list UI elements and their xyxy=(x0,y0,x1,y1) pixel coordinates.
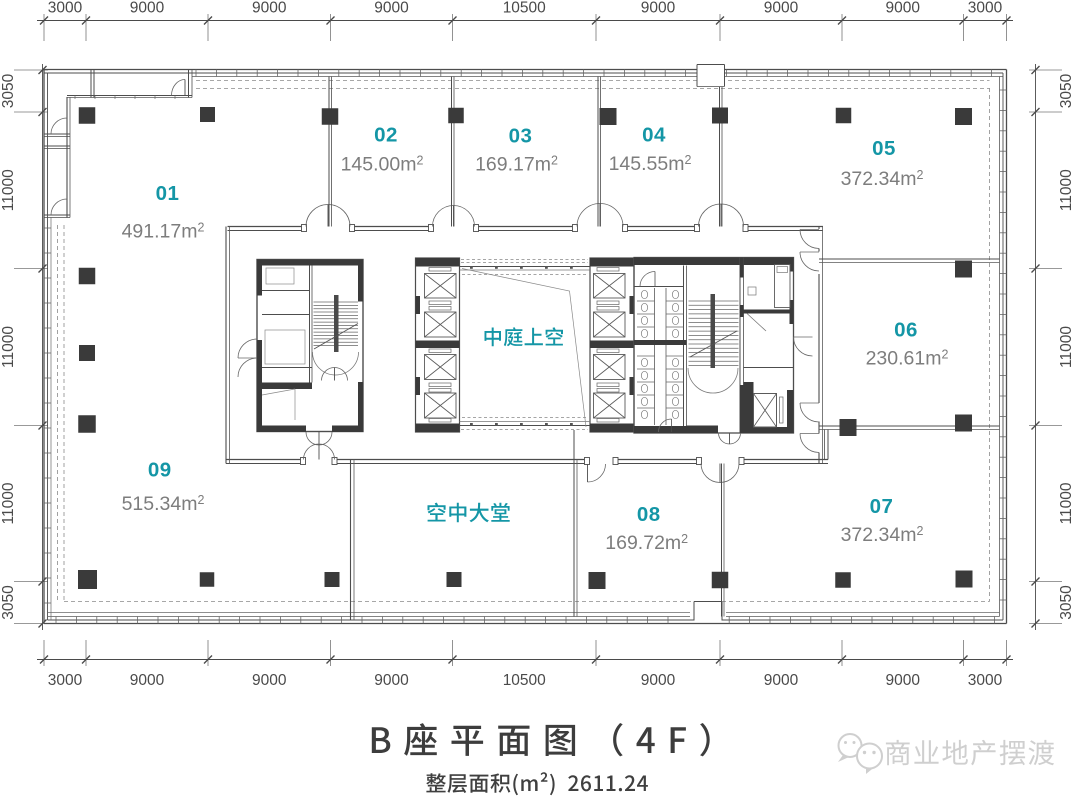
svg-text:3050: 3050 xyxy=(0,73,17,108)
svg-text:10500: 10500 xyxy=(503,672,546,689)
svg-text:3050: 3050 xyxy=(1058,585,1075,620)
svg-text:08: 08 xyxy=(637,503,661,526)
svg-text:372.34m2: 372.34m2 xyxy=(841,168,924,190)
svg-text:11000: 11000 xyxy=(1058,482,1075,524)
svg-text:03: 03 xyxy=(509,125,533,148)
svg-text:145.55m2: 145.55m2 xyxy=(609,153,692,175)
svg-text:05: 05 xyxy=(872,137,896,160)
svg-text:11000: 11000 xyxy=(0,169,17,211)
svg-text:145.00m2: 145.00m2 xyxy=(341,154,424,176)
svg-text:3000: 3000 xyxy=(48,0,83,17)
svg-text:372.34m2: 372.34m2 xyxy=(841,524,924,546)
svg-text:10500: 10500 xyxy=(503,0,546,17)
svg-text:11000: 11000 xyxy=(1058,169,1075,211)
svg-text:02: 02 xyxy=(374,124,398,147)
svg-text:9000: 9000 xyxy=(764,672,799,689)
svg-text:9000: 9000 xyxy=(764,0,799,17)
svg-text:3000: 3000 xyxy=(968,0,1003,17)
svg-text:3000: 3000 xyxy=(48,672,83,689)
svg-text:9000: 9000 xyxy=(374,672,409,689)
svg-text:06: 06 xyxy=(894,319,918,342)
svg-text:9000: 9000 xyxy=(886,672,921,689)
svg-text:04: 04 xyxy=(642,124,666,147)
svg-text:9000: 9000 xyxy=(641,0,676,17)
svg-text:09: 09 xyxy=(148,459,172,482)
svg-text:230.61m2: 230.61m2 xyxy=(866,348,949,370)
svg-text:11000: 11000 xyxy=(0,482,17,524)
svg-text:9000: 9000 xyxy=(252,672,287,689)
svg-text:3050: 3050 xyxy=(0,585,17,620)
svg-text:9000: 9000 xyxy=(641,672,676,689)
svg-text:9000: 9000 xyxy=(130,0,165,17)
svg-text:01: 01 xyxy=(156,182,180,205)
svg-text:9000: 9000 xyxy=(886,0,921,17)
svg-text:9000: 9000 xyxy=(252,0,287,17)
svg-text:9000: 9000 xyxy=(130,672,165,689)
svg-text:11000: 11000 xyxy=(0,326,17,368)
svg-text:515.34m2: 515.34m2 xyxy=(122,493,205,515)
svg-text:07: 07 xyxy=(870,495,894,518)
svg-text:169.72m2: 169.72m2 xyxy=(605,532,688,554)
svg-text:3050: 3050 xyxy=(1058,73,1075,108)
svg-text:169.17m2: 169.17m2 xyxy=(475,154,558,176)
svg-text:9000: 9000 xyxy=(374,0,409,17)
svg-text:3000: 3000 xyxy=(968,672,1003,689)
svg-text:11000: 11000 xyxy=(1058,326,1075,368)
svg-text:491.17m2: 491.17m2 xyxy=(122,221,205,243)
